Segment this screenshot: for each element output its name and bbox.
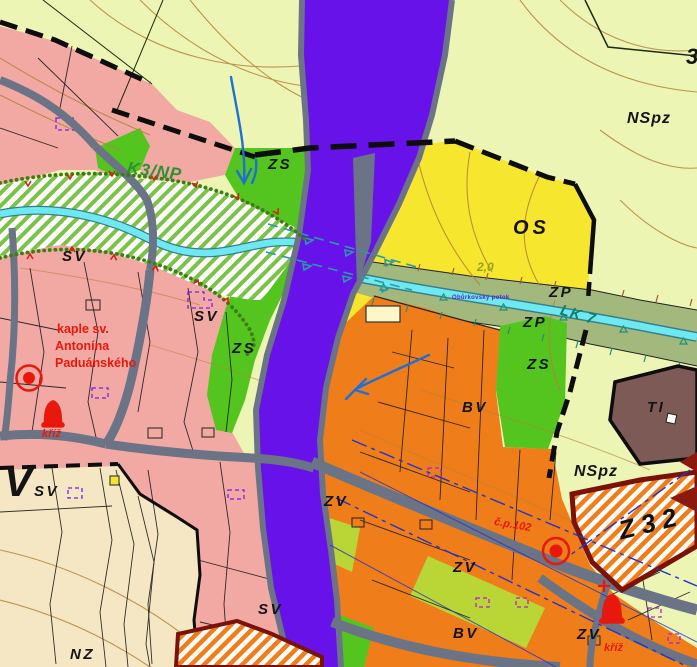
label-kriz-2: kříž [604,642,623,654]
label-zs-right: ZS [526,356,551,373]
label-bv: BV [462,399,488,416]
label-ti: TI [647,399,665,416]
label-chapel-1: kaple sv. [57,322,109,336]
label-edge-parcel: 3 [686,44,697,69]
zoning-map-canvas[interactable]: ZS K3/NP OS 2,0 ZP ZP LK 7 ZS ZS BV BV T… [0,0,697,667]
label-zv-1: ZV [323,493,348,510]
label-chapel-3: Paduánského [55,356,137,370]
label-zs-mid: ZS [231,340,256,357]
label-nspz-top: NSpz [627,110,671,127]
label-zp-2: ZP [522,314,547,331]
label-sv-3: SV [258,601,283,618]
label-stream-name: Obůrkovský potok [452,294,510,301]
zoning-map: ZS K3/NP OS 2,0 ZP ZP LK 7 ZS ZS BV BV T… [0,0,697,667]
label-zv-3: ZV [576,626,601,643]
label-v-large: V [4,458,35,505]
label-zv-2: ZV [452,559,477,576]
label-nspz-mid: NSpz [574,463,618,480]
label-v-sub: SV [34,483,59,500]
label-zp-1: ZP [548,284,573,301]
os-parcel-rect [366,306,400,322]
label-os: OS [513,217,550,239]
label-chapel-2: Antonína [55,339,110,353]
label-os-capacity: 2,0 [476,260,494,274]
ti-building-square [666,413,677,424]
label-bv-bottom: BV [453,625,479,642]
label-sv-2: SV [194,308,219,325]
boundary-marker-square [110,476,119,485]
label-zs-top: ZS [267,156,292,173]
label-kriz-1: kříž [42,428,61,440]
label-sv-1: SV [62,248,87,265]
label-nz: NZ [70,646,95,663]
